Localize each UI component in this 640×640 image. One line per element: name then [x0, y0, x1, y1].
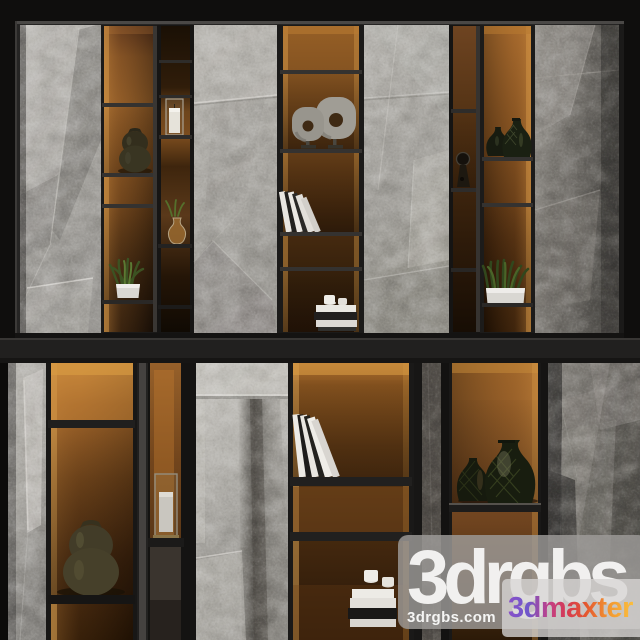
svg-text:3drgbs.com: 3drgbs.com [407, 609, 496, 626]
svg-text:3dmaxter: 3dmaxter [508, 592, 633, 624]
